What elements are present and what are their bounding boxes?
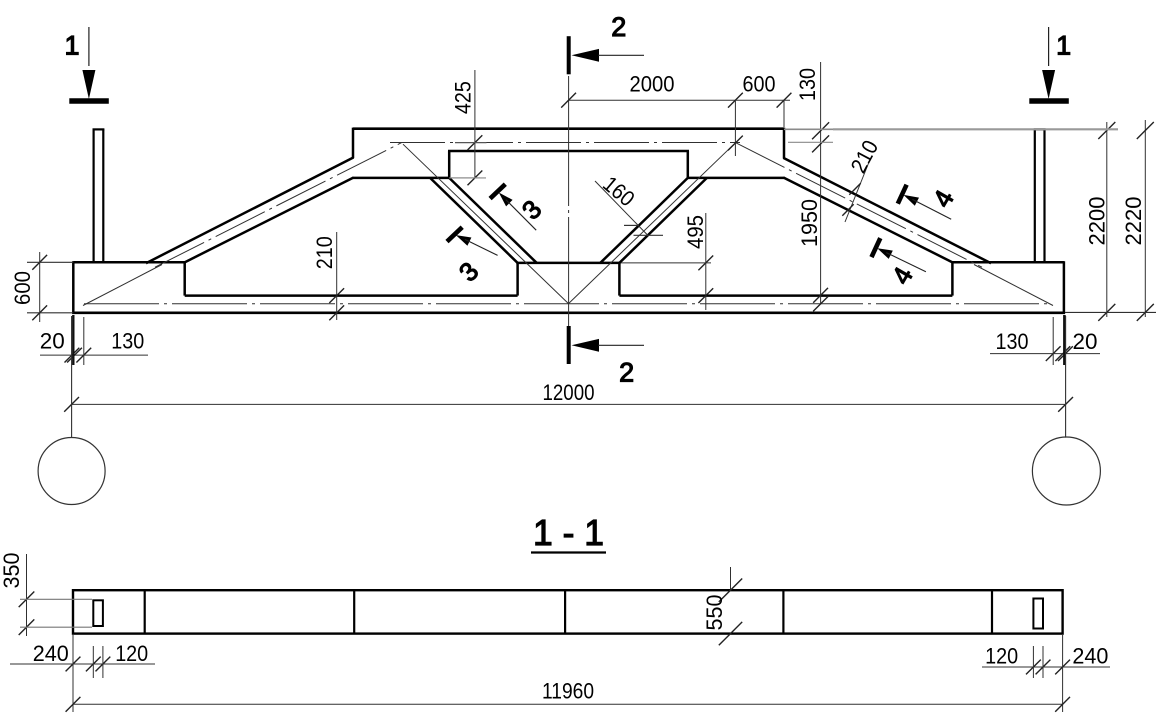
svg-text:130: 130	[996, 329, 1029, 354]
svg-text:130: 130	[795, 68, 820, 101]
svg-text:120: 120	[985, 644, 1018, 669]
svg-text:2: 2	[619, 357, 634, 387]
svg-text:11960: 11960	[542, 679, 594, 704]
svg-text:210: 210	[312, 236, 337, 269]
svg-text:1950: 1950	[797, 199, 822, 247]
svg-text:2220: 2220	[1121, 197, 1146, 246]
svg-text:1 - 1: 1 - 1	[533, 512, 604, 553]
svg-text:2: 2	[611, 12, 626, 42]
svg-text:425: 425	[451, 81, 476, 114]
svg-text:550: 550	[702, 595, 727, 631]
svg-text:1: 1	[1056, 31, 1071, 61]
svg-text:495: 495	[683, 215, 708, 249]
svg-text:2000: 2000	[630, 72, 675, 97]
svg-text:4: 4	[927, 185, 960, 213]
svg-text:20: 20	[40, 329, 65, 354]
svg-text:600: 600	[743, 72, 776, 97]
svg-text:240: 240	[33, 641, 69, 666]
svg-text:600: 600	[10, 271, 35, 305]
svg-text:20: 20	[1073, 329, 1098, 354]
svg-text:210: 210	[846, 136, 884, 177]
svg-text:350: 350	[0, 553, 24, 589]
svg-text:240: 240	[1072, 644, 1108, 669]
svg-text:12000: 12000	[543, 380, 595, 405]
svg-text:160: 160	[598, 171, 639, 211]
svg-text:3: 3	[516, 194, 547, 225]
svg-text:120: 120	[115, 641, 148, 666]
svg-text:3: 3	[453, 256, 484, 287]
svg-text:2200: 2200	[1085, 197, 1110, 246]
svg-text:1: 1	[64, 31, 79, 61]
svg-text:130: 130	[111, 329, 144, 354]
